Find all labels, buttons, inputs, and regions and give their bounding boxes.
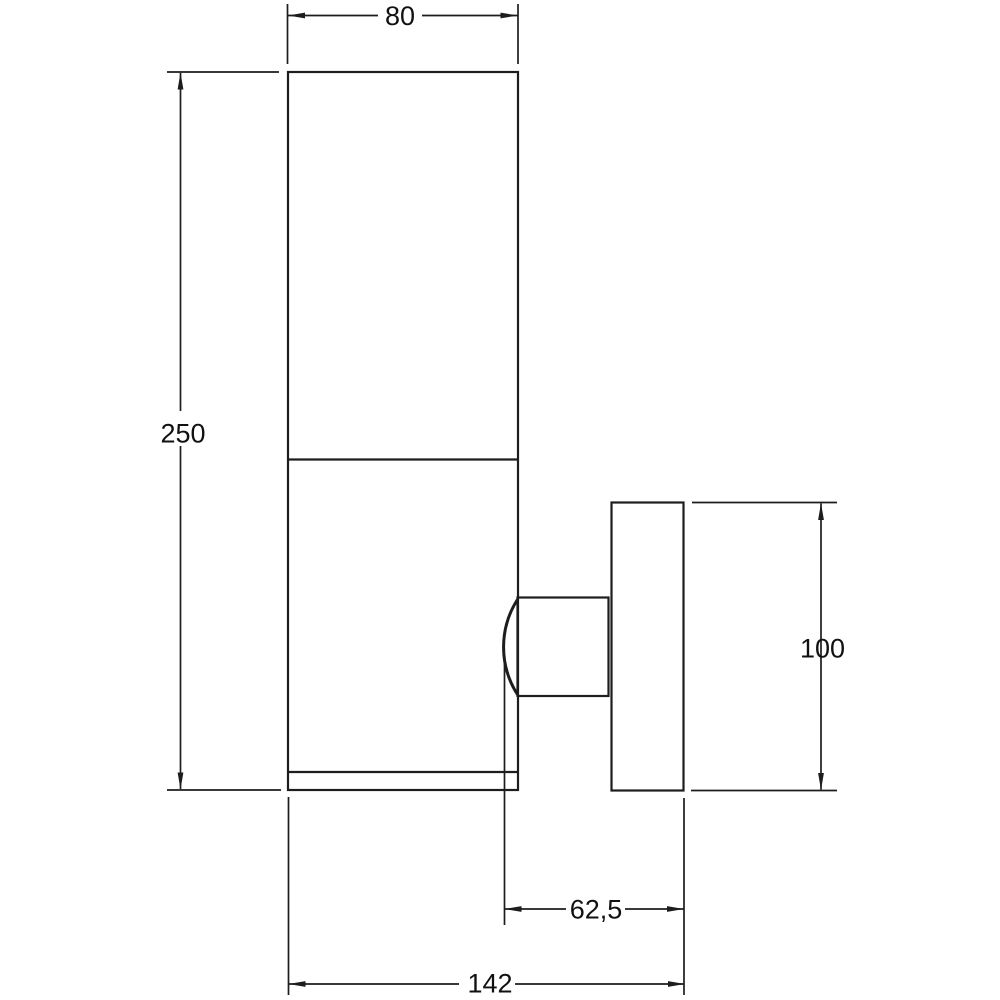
dim-250-arrow-top bbox=[178, 73, 184, 90]
dim-label-total-depth: 142 bbox=[467, 969, 512, 999]
dim-label-body-height: 250 bbox=[160, 419, 205, 449]
dim-label-body-width: 80 bbox=[385, 1, 415, 31]
dimension-body-width: 80 bbox=[288, 1, 519, 64]
dim-label-wall-to-body: 62,5 bbox=[570, 895, 623, 925]
dim-62-arrow-right bbox=[667, 906, 684, 912]
dim-250-arrow-bottom bbox=[178, 773, 184, 790]
mounting-arm-outline bbox=[518, 598, 609, 697]
technical-drawing-canvas: 80 250 100 62,5 142 bbox=[0, 0, 1000, 1000]
wall-backplate-outline bbox=[612, 503, 684, 791]
wall-backplate bbox=[612, 503, 684, 791]
dim-62-arrow-left bbox=[505, 906, 522, 912]
lamp-body-outline bbox=[288, 72, 518, 790]
dim-100-arrow-top bbox=[818, 503, 824, 520]
dimension-total-depth: 142 bbox=[289, 797, 686, 999]
dim-80-arrow-right bbox=[501, 13, 518, 19]
dim-142-arrow-right bbox=[668, 981, 685, 987]
dim-label-backplate-height: 100 bbox=[800, 634, 845, 664]
dim-80-arrow-left bbox=[288, 13, 305, 19]
dimension-wall-to-body: 62,5 bbox=[505, 659, 685, 995]
lamp-dimension-drawing: 80 250 100 62,5 142 bbox=[0, 0, 1000, 1000]
lamp-body-front-view bbox=[288, 72, 518, 790]
dimension-backplate-height: 100 bbox=[691, 503, 845, 791]
dim-100-arrow-bottom bbox=[818, 773, 824, 790]
dim-142-arrow-left bbox=[289, 981, 306, 987]
dimension-body-height: 250 bbox=[160, 72, 281, 790]
mounting-arm-dome-arc bbox=[504, 600, 518, 695]
mounting-arm bbox=[504, 598, 609, 697]
